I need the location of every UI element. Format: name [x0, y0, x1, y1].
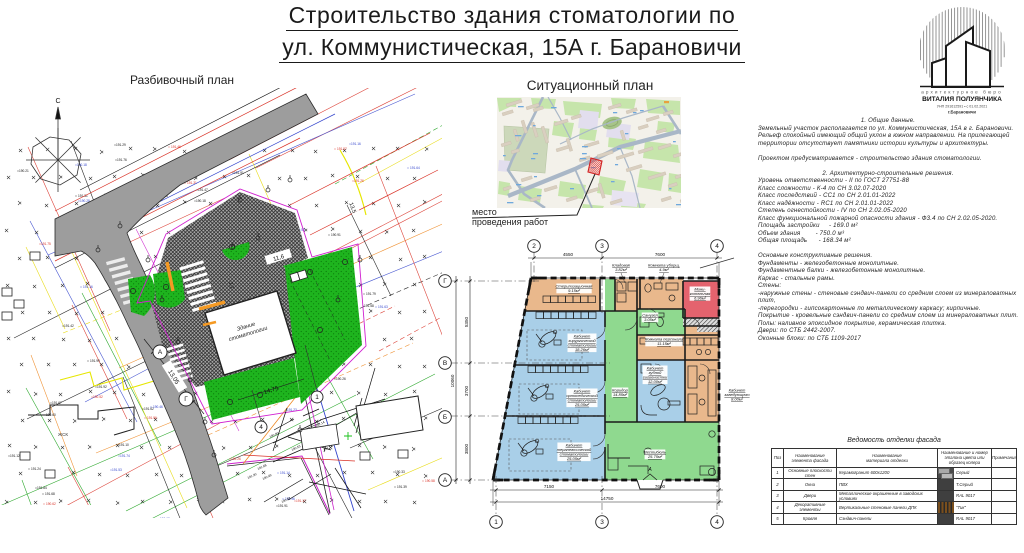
svg-text:191.10: 191.10	[119, 443, 129, 447]
svg-text:191.91: 191.91	[278, 504, 288, 508]
svg-text:190.33: 190.33	[395, 470, 405, 474]
svg-text:11.15м²: 11.15м²	[657, 341, 671, 346]
svg-text:191.58: 191.58	[364, 304, 374, 308]
svg-text:190.53: 190.53	[281, 496, 292, 504]
svg-text:191.92: 191.92	[97, 385, 107, 389]
svg-text:191.42: 191.42	[64, 324, 74, 328]
svg-text:191.91: 191.91	[234, 171, 244, 175]
svg-text:191.17: 191.17	[296, 499, 306, 503]
svg-text:190.21: 190.21	[19, 169, 29, 173]
svg-text:190.18: 190.18	[196, 199, 206, 203]
svg-text:7600: 7600	[655, 252, 666, 257]
svg-text:191.16: 191.16	[351, 142, 361, 146]
svg-text:190.90: 190.90	[269, 431, 280, 439]
svg-text:190.46: 190.46	[153, 405, 163, 409]
svg-text:190.52: 190.52	[93, 395, 103, 399]
svg-text:191.26: 191.26	[354, 179, 364, 183]
svg-text:191.31: 191.31	[187, 181, 197, 185]
svg-text:190.53: 190.53	[291, 444, 302, 452]
svg-text:ВИТАЛИЯ ПОЛУЯНЧИКА: ВИТАЛИЯ ПОЛУЯНЧИКА	[922, 96, 1002, 103]
svg-text:3: 3	[600, 519, 604, 526]
svg-text:191.67: 191.67	[52, 401, 62, 405]
svg-text:14.85м²: 14.85м²	[613, 392, 628, 397]
svg-text:191.64: 191.64	[410, 166, 420, 170]
svg-text:190.60: 190.60	[46, 413, 56, 417]
svg-text:191.14: 191.14	[280, 471, 290, 475]
svg-text:191.63: 191.63	[378, 305, 388, 309]
svg-text:191.16: 191.16	[83, 285, 93, 289]
svg-text:3700: 3700	[464, 385, 469, 396]
svg-text:Б: Б	[443, 414, 447, 421]
svg-text:191.76: 191.76	[117, 158, 127, 162]
svg-text:г.Барановичи: г.Барановичи	[948, 110, 976, 115]
svg-text:3.05м²: 3.05м²	[644, 317, 657, 322]
svg-text:191.96: 191.96	[147, 416, 157, 420]
svg-text:7600: 7600	[655, 484, 666, 489]
svg-text:ЖСК: ЖСК	[58, 432, 68, 437]
svg-text:6.96м²: 6.96м²	[694, 295, 707, 300]
svg-text:3.82м²: 3.82м²	[615, 267, 628, 272]
svg-text:9.15м²: 9.15м²	[568, 288, 581, 293]
svg-text:А: А	[443, 477, 448, 484]
svg-text:1: 1	[494, 519, 498, 526]
svg-text:190.26: 190.26	[231, 457, 241, 461]
svg-text:5350: 5350	[464, 316, 469, 327]
svg-text:4: 4	[259, 424, 263, 431]
svg-text:190.91: 190.91	[331, 233, 341, 237]
svg-text:10060: 10060	[450, 374, 455, 387]
svg-text:191.24: 191.24	[31, 467, 41, 471]
svg-text:191.68: 191.68	[45, 492, 55, 496]
svg-text:4: 4	[715, 519, 719, 526]
svg-text:В: В	[443, 360, 447, 367]
svg-text:191.12: 191.12	[10, 454, 20, 458]
svg-text:191.74: 191.74	[120, 454, 130, 458]
svg-text:Г: Г	[443, 278, 447, 285]
svg-text:191.39: 191.39	[397, 485, 407, 489]
svg-text:12.00м²: 12.00м²	[648, 379, 663, 384]
svg-text:Г: Г	[184, 396, 188, 403]
svg-text:190.26: 190.26	[336, 377, 346, 381]
svg-text:4550: 4550	[563, 252, 574, 257]
svg-text:2: 2	[532, 243, 536, 250]
svg-text:191.30: 191.30	[247, 472, 258, 480]
svg-text:25.05м²: 25.05м²	[566, 456, 582, 461]
svg-text:архитектурное бюро: архитектурное бюро	[921, 90, 1002, 95]
svg-text:С: С	[55, 98, 60, 105]
svg-text:191.99: 191.99	[90, 359, 100, 363]
svg-text:190.49: 190.49	[262, 473, 273, 481]
svg-text:3800: 3800	[464, 443, 469, 454]
svg-text:18.26м²: 18.26м²	[575, 347, 590, 352]
svg-text:А: А	[647, 467, 652, 473]
svg-text:191.84: 191.84	[37, 486, 47, 490]
svg-text:8.00м²: 8.00м²	[731, 396, 744, 401]
svg-text:4: 4	[715, 243, 719, 250]
svg-text:25.75м²: 25.75м²	[647, 454, 663, 459]
svg-text:191.46: 191.46	[171, 145, 181, 149]
svg-text:191.79: 191.79	[366, 292, 376, 296]
svg-text:4.9м²: 4.9м²	[659, 267, 669, 272]
svg-text:191.75: 191.75	[41, 242, 51, 246]
svg-text:25.05м²: 25.05м²	[574, 402, 590, 407]
svg-text:7150: 7150	[544, 484, 555, 489]
svg-text:УНП 291612591 • с 01.02.2021: УНП 291612591 • с 01.02.2021	[937, 105, 988, 109]
svg-text:3: 3	[600, 243, 604, 250]
svg-text:191.53: 191.53	[112, 468, 122, 472]
svg-text:14750: 14750	[601, 496, 614, 501]
svg-text:191.57: 191.57	[337, 147, 347, 151]
svg-text:1: 1	[315, 394, 319, 401]
svg-text:191.29: 191.29	[116, 143, 126, 147]
svg-text:А: А	[158, 349, 163, 356]
